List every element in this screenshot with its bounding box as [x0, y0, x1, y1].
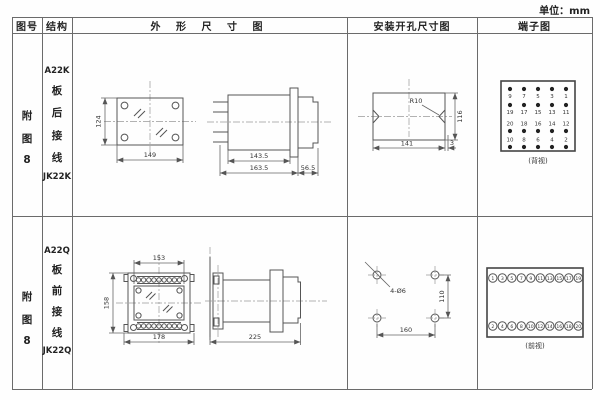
centerlines: [104, 81, 196, 155]
row2-fig-no: 附 图 8: [12, 289, 42, 347]
terminal-screws-top: 1 3 5 7 9 11 13 15 17 19: [489, 274, 583, 282]
svg-text:17: 17: [566, 276, 572, 282]
row2-outline-front-view: 153 158 178: [100, 230, 215, 360]
svg-text:8: 8: [520, 324, 523, 330]
dimension-sheet: 单位：mm 图号 结构 外 形 尺 寸 图 安装开孔尺寸图 端子图 附 图 8 …: [0, 0, 600, 400]
dim-label-radius: R10: [410, 97, 423, 105]
row1-mounting-hole-view: R10 116 141 3: [350, 75, 475, 185]
terminal-numbers: 9 7 5 3 1 19 17 15 13 11 20 18 16 14 12 …: [507, 94, 570, 144]
table-border-right: [592, 17, 593, 389]
svg-text:11: 11: [563, 110, 570, 116]
relay-case-side: [213, 88, 318, 157]
svg-text:20: 20: [507, 122, 514, 128]
svg-text:13: 13: [547, 276, 553, 282]
svg-text:12: 12: [537, 324, 543, 330]
row1-outline-front-view: 124 149: [90, 75, 210, 185]
dim-label-width: 178: [153, 333, 165, 341]
svg-text:5: 5: [510, 276, 513, 282]
row1-fig-no: 附 图 8: [12, 108, 42, 166]
dimension-143-5: 143.5: [228, 150, 290, 164]
svg-text:7: 7: [520, 276, 523, 282]
row2-terminal-diagram: 1 3 5 7 9 11 13 15 17 19 2 4 6 8 10 12 1…: [485, 262, 590, 357]
svg-text:12: 12: [563, 122, 570, 128]
dim-label-depth: 225: [249, 333, 261, 341]
svg-text:3: 3: [550, 94, 554, 100]
row1-outline-side-view: 143.5 163.5 56.5: [205, 75, 345, 185]
row1-structure: A22K 板 后 接 线 JK22K: [42, 66, 72, 182]
dim-label-holes: 4-Ø6: [390, 287, 406, 295]
svg-text:10: 10: [528, 324, 534, 330]
svg-text:1: 1: [491, 276, 494, 282]
header-mounting: 安装开孔尺寸图: [347, 17, 477, 33]
col-divider-3: [347, 17, 348, 389]
table-header-divider: [12, 33, 592, 34]
dim-label-depth-total: 163.5: [250, 164, 269, 172]
svg-text:4: 4: [550, 138, 554, 144]
svg-text:7: 7: [522, 94, 526, 100]
svg-text:19: 19: [575, 276, 581, 282]
svg-text:8: 8: [522, 138, 526, 144]
terminal-screws-bottom: 2 4 6 8 10 12 14 16 18 20: [489, 322, 583, 330]
svg-text:2: 2: [564, 138, 568, 144]
svg-text:15: 15: [535, 110, 542, 116]
header-fig-no: 图号: [12, 17, 42, 33]
hole-callout: 4-Ø6: [365, 262, 406, 295]
svg-text:2: 2: [491, 324, 494, 330]
header-terminal: 端子图: [477, 17, 592, 33]
row1-terminal-diagram: 9 7 5 3 1 19 17 15 13 11 20 18 16 14 12 …: [495, 78, 590, 173]
svg-text:15: 15: [556, 276, 562, 282]
svg-text:9: 9: [529, 276, 532, 282]
dim-label-hole-spacing-h: 160: [400, 326, 412, 334]
svg-text:18: 18: [566, 324, 572, 330]
dim-label-edge-offset: 3: [450, 139, 454, 147]
svg-text:18: 18: [521, 122, 528, 128]
dim-label-hole-spacing-v: 110: [438, 290, 446, 302]
radius-callout: R10: [410, 97, 439, 115]
header-outline: 外 形 尺 寸 图: [72, 17, 347, 33]
dimension-225: 225: [210, 323, 301, 345]
svg-text:9: 9: [508, 94, 512, 100]
row2-outline-side-view: 225: [205, 245, 335, 365]
svg-text:20: 20: [575, 324, 581, 330]
svg-text:5: 5: [536, 94, 540, 100]
dim-label-depth-inner: 143.5: [250, 152, 269, 160]
table-row-divider: [12, 216, 592, 217]
svg-text:10: 10: [507, 138, 514, 144]
svg-text:17: 17: [521, 110, 528, 116]
dimension-110: 110: [438, 275, 451, 318]
svg-text:11: 11: [537, 276, 543, 282]
dim-label-inner-width: 153: [153, 254, 165, 262]
svg-text:13: 13: [549, 110, 556, 116]
col-divider-4: [477, 17, 478, 389]
dim-label-height: 158: [103, 297, 111, 309]
svg-text:4: 4: [501, 324, 504, 330]
centerlines: [116, 254, 202, 344]
dimension-160: 160: [377, 324, 435, 338]
view-caption: (前视): [525, 341, 545, 350]
svg-text:16: 16: [556, 324, 562, 330]
dimension-178: 178: [124, 333, 194, 345]
dim-label-cutout-width: 141: [401, 140, 413, 148]
dim-label-front-depth: 56.5: [301, 164, 315, 172]
col-divider-2: [72, 17, 73, 389]
table-border-bottom: [12, 389, 592, 390]
header-structure: 结构: [42, 17, 72, 33]
svg-text:14: 14: [549, 122, 556, 128]
centerlines: [358, 79, 452, 137]
svg-text:16: 16: [535, 122, 542, 128]
svg-text:14: 14: [547, 324, 553, 330]
svg-text:6: 6: [510, 324, 513, 330]
row2-mounting-hole-view: 4-Ø6 110 160: [350, 250, 475, 370]
row2-structure: A22Q 板 前 接 线 JK22Q: [42, 246, 72, 356]
dim-label-height: 124: [95, 115, 103, 127]
dim-label-cutout-height: 116: [456, 110, 464, 122]
svg-text:1: 1: [564, 94, 568, 100]
unit-label: 单位：mm: [539, 2, 590, 17]
dimension-116: 116: [445, 93, 464, 140]
svg-text:3: 3: [501, 276, 504, 282]
svg-text:6: 6: [536, 138, 540, 144]
mounting-holes: [368, 266, 444, 327]
view-caption: (背视): [528, 156, 548, 165]
svg-text:19: 19: [507, 110, 514, 116]
dimension-56-5: 56.5: [298, 148, 318, 176]
dimension-141: 141 3: [373, 135, 456, 151]
dim-label-width: 149: [144, 151, 156, 159]
